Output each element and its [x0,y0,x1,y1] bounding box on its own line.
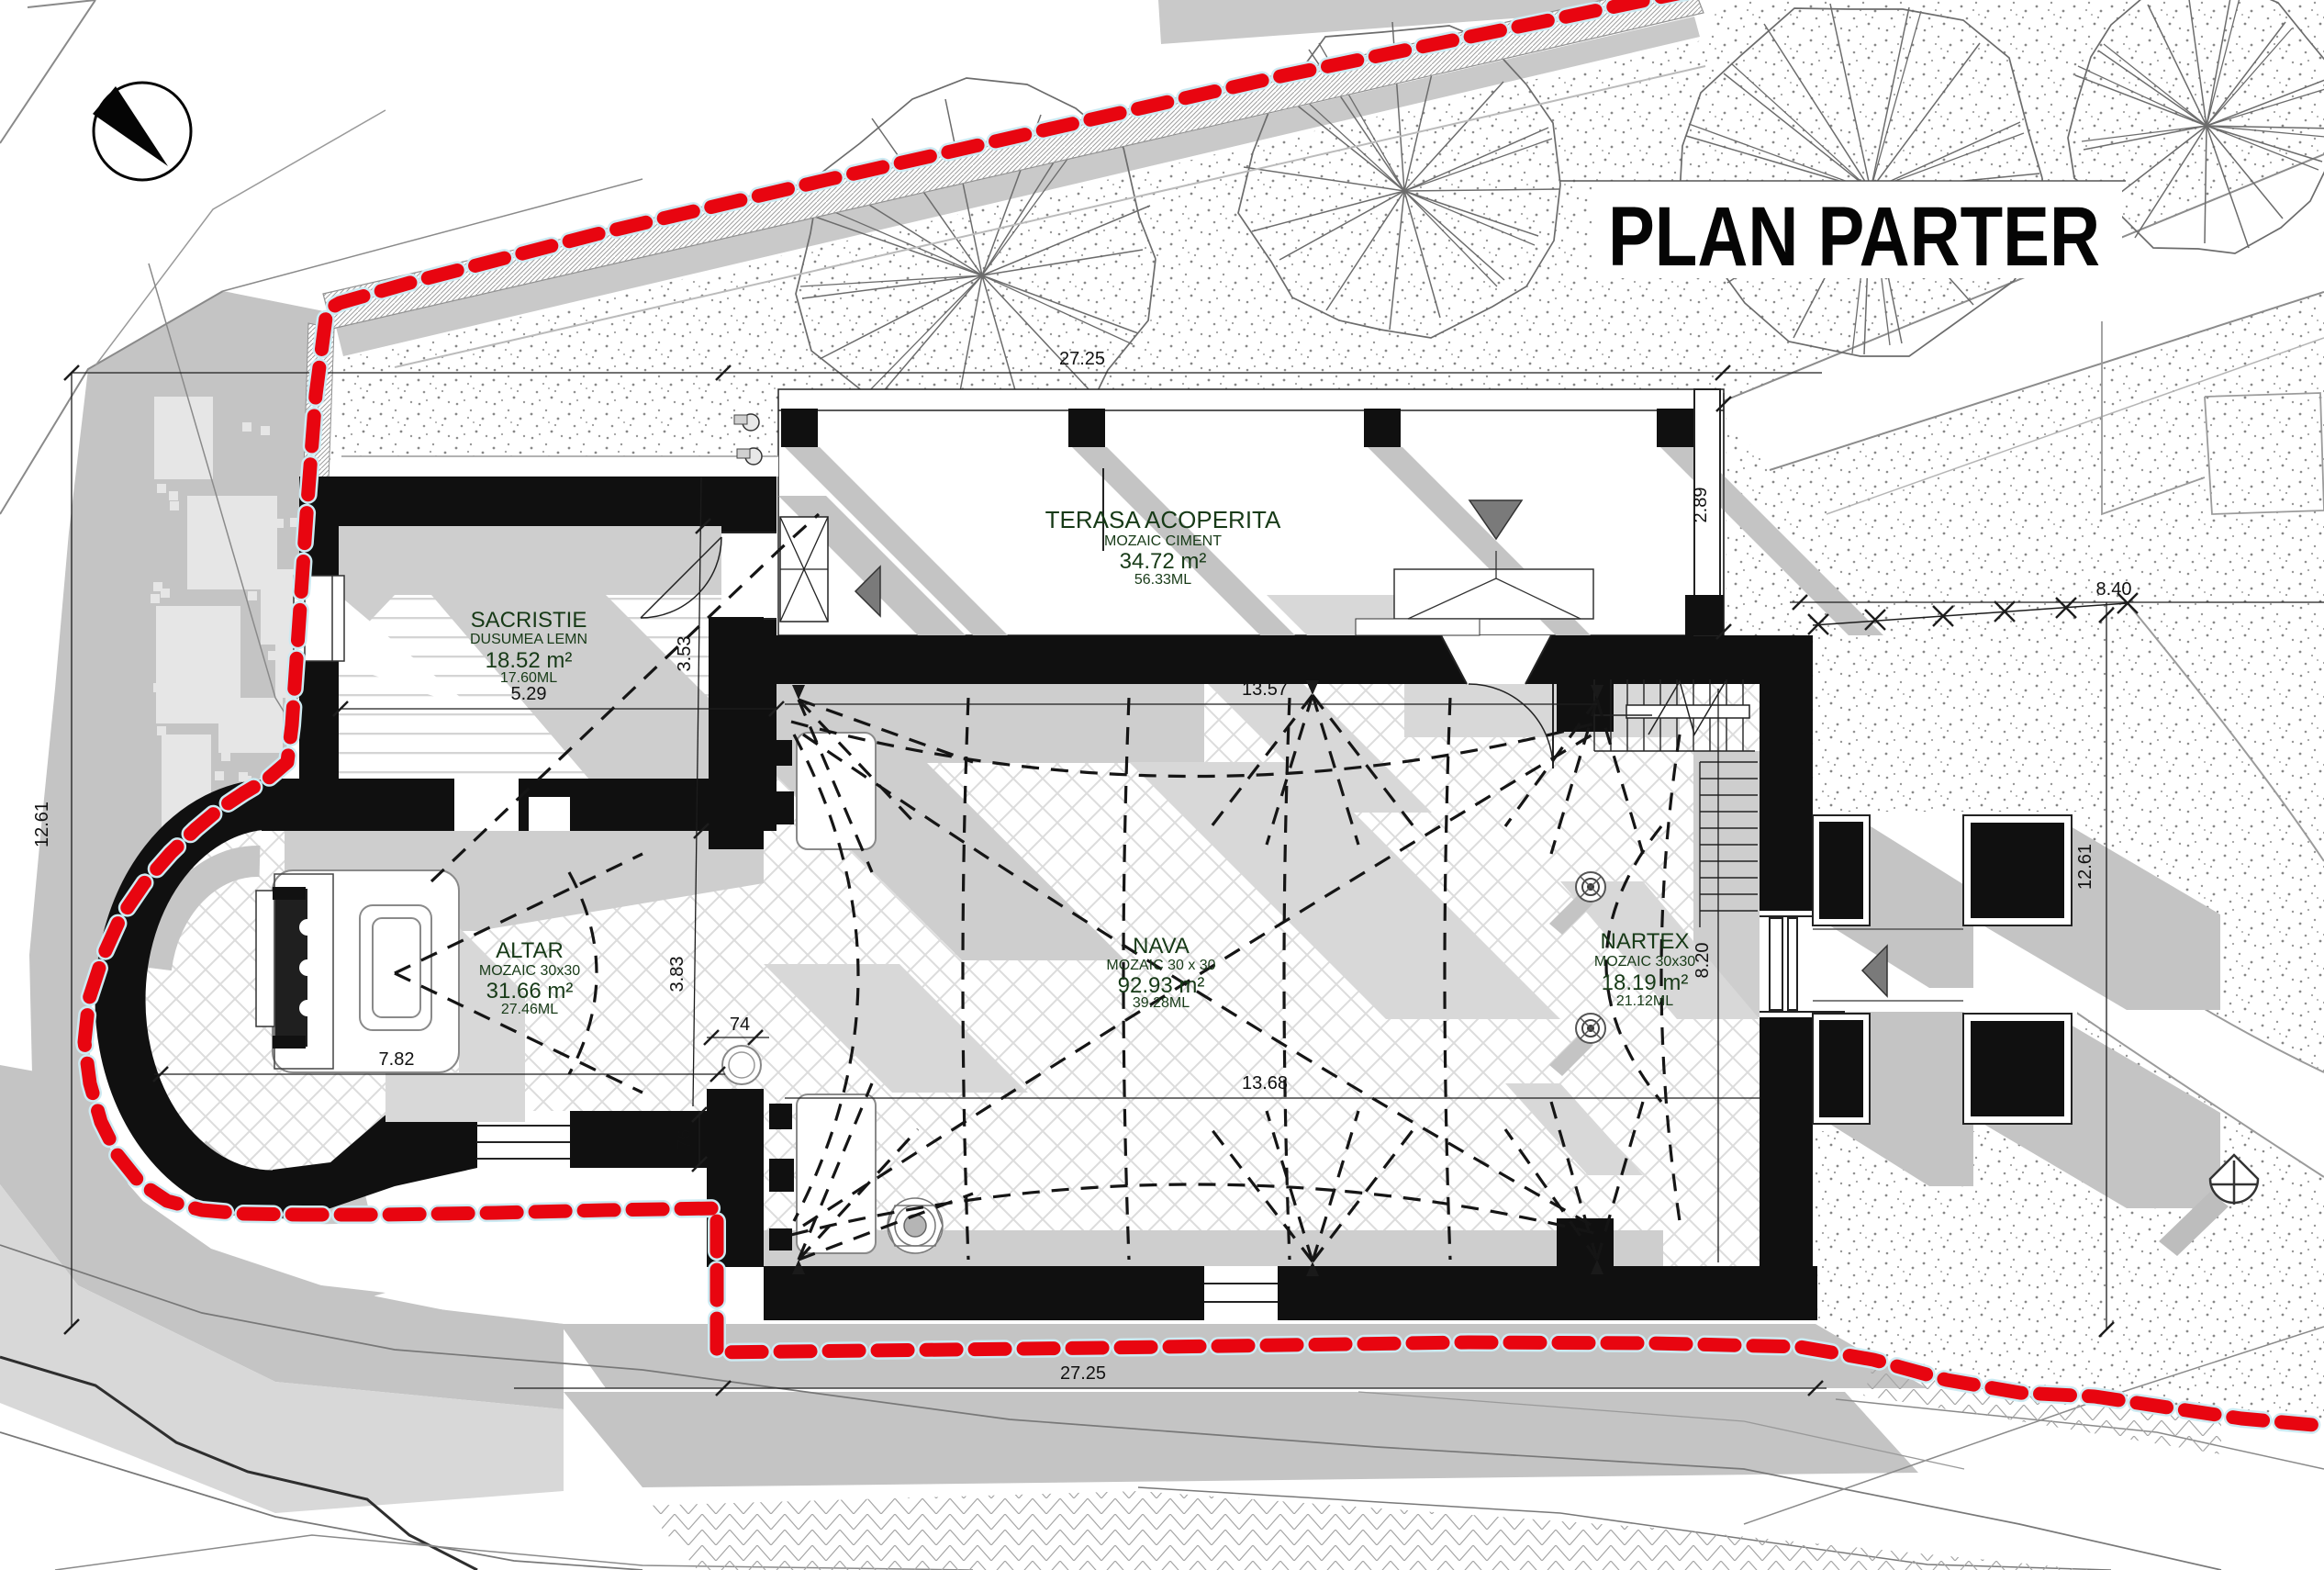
svg-text:MOZAIC 30 x 30: MOZAIC 30 x 30 [1106,958,1215,973]
svg-text:NAVA: NAVA [1133,934,1190,959]
svg-text:12.61: 12.61 [2075,844,2095,890]
svg-text:DUSUMEA LEMN: DUSUMEA LEMN [470,632,587,647]
svg-text:74: 74 [730,1015,750,1035]
svg-text:27.25: 27.25 [1060,1363,1106,1384]
svg-text:17.60ML: 17.60ML [500,670,557,686]
svg-text:39.28ML: 39.28ML [1133,995,1190,1011]
svg-text:3.83: 3.83 [667,957,687,992]
svg-text:56.33ML: 56.33ML [1134,572,1191,588]
svg-text:TERASA ACOPERITA: TERASA ACOPERITA [1045,506,1281,533]
svg-text:MOZAIC CIMENT: MOZAIC CIMENT [1104,533,1222,549]
svg-text:13.68: 13.68 [1242,1073,1288,1093]
svg-text:31.66 m²: 31.66 m² [486,979,574,1004]
svg-text:18.19 m²: 18.19 m² [1602,970,1689,995]
svg-text:21.12ML: 21.12ML [1616,993,1673,1009]
svg-text:92.93 m²: 92.93 m² [1118,973,1205,998]
svg-text:76: 76 [675,1129,695,1149]
svg-text:3.53: 3.53 [675,636,695,672]
svg-text:2.89: 2.89 [1691,488,1711,523]
svg-text:MOZAIC 30x30: MOZAIC 30x30 [1594,954,1695,970]
svg-text:SACRISTIE: SACRISTIE [471,608,587,633]
svg-text:ALTAR: ALTAR [496,938,564,963]
svg-text:27.25: 27.25 [1059,349,1105,369]
svg-text:12.61: 12.61 [32,802,52,847]
svg-text:NARTEX: NARTEX [1601,929,1690,954]
svg-text:8.20: 8.20 [1693,943,1713,979]
svg-text:13.57: 13.57 [1242,679,1288,700]
svg-text:8.40: 8.40 [2096,579,2132,600]
svg-text:34.72 m²: 34.72 m² [1120,549,1207,574]
svg-text:5.29: 5.29 [511,684,547,704]
svg-text:27.46ML: 27.46ML [501,1002,558,1017]
svg-text:7.82: 7.82 [379,1049,415,1070]
svg-text:18.52 m²: 18.52 m² [486,648,573,673]
svg-text:MOZAIC 30x30: MOZAIC 30x30 [479,963,580,979]
svg-text:PLAN PARTER: PLAN PARTER [1608,190,2100,284]
